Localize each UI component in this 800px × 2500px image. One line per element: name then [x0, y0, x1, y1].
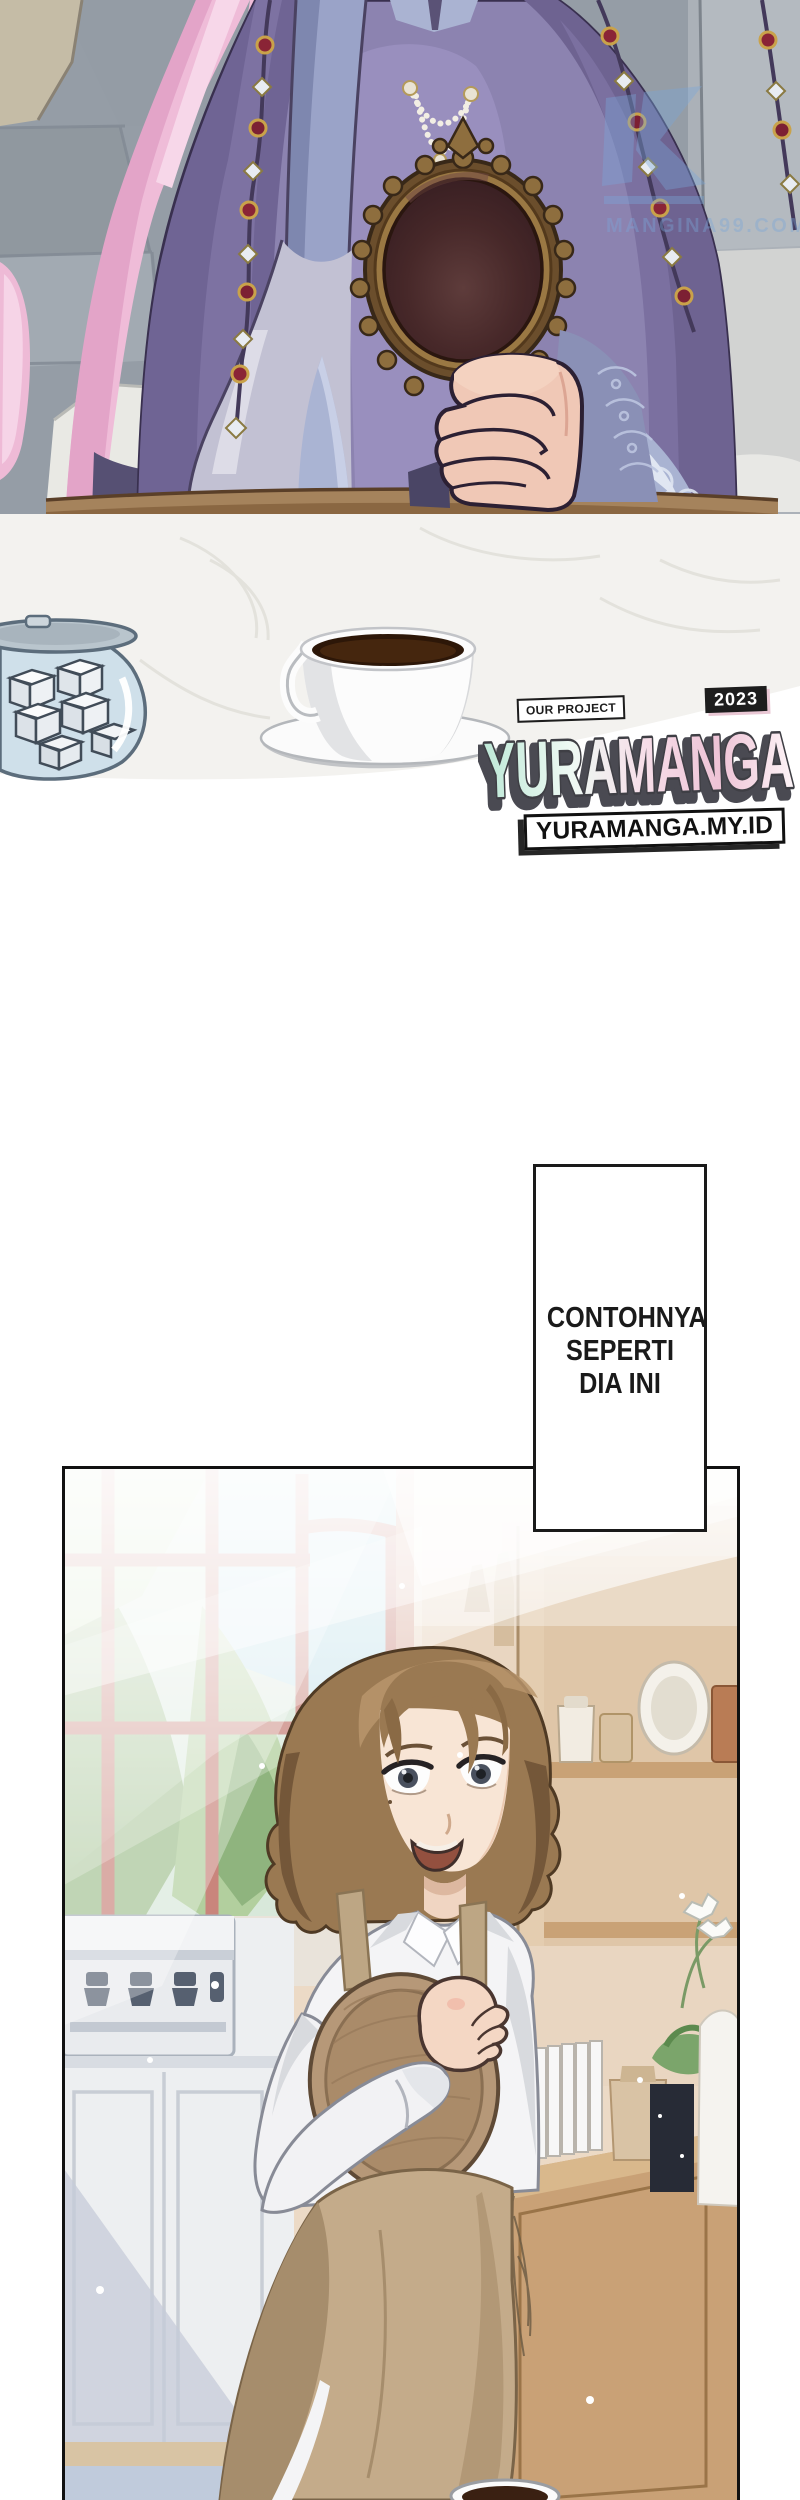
svg-text:YURAMANGA: YURAMANGA	[483, 716, 795, 814]
svg-text:MANGINA99.COM: MANGINA99.COM	[606, 215, 800, 237]
